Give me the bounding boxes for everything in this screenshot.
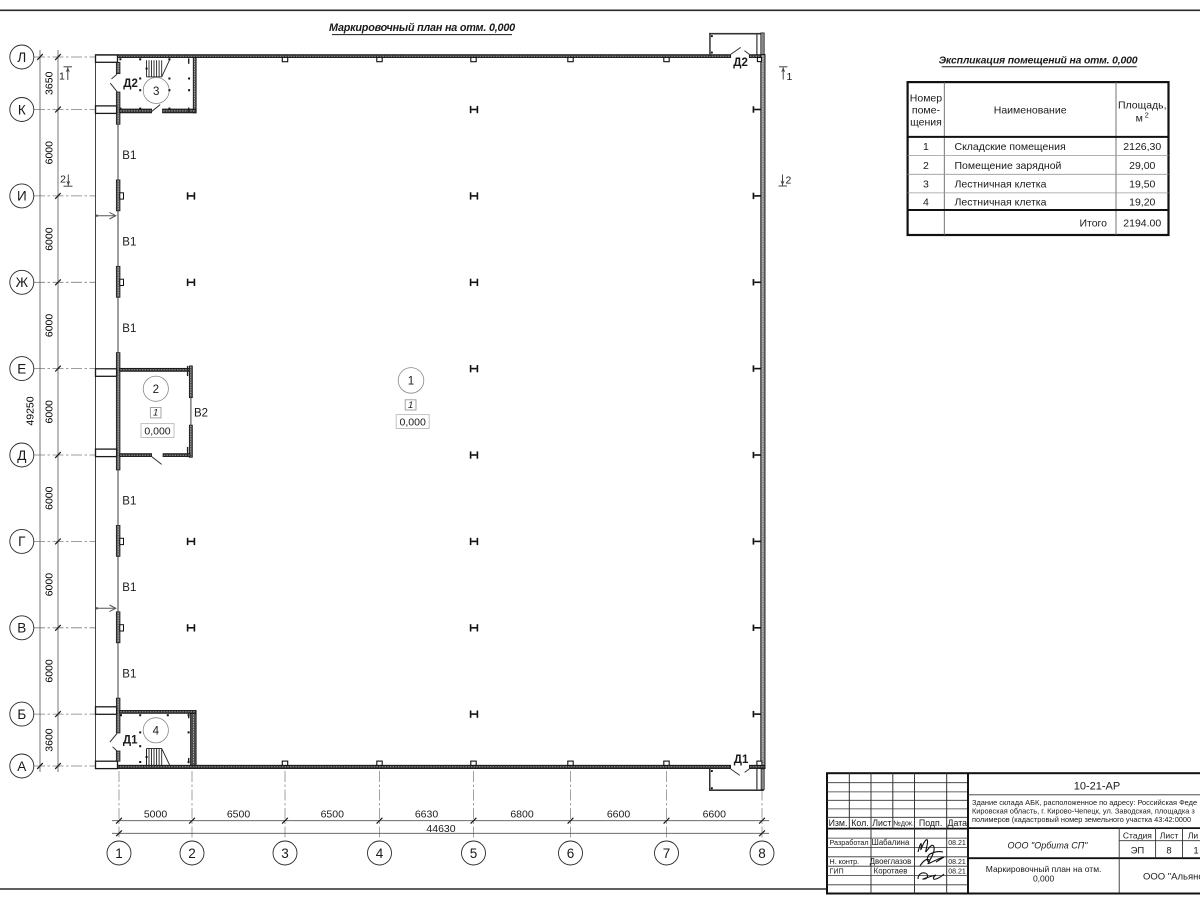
svg-text:Д: Д xyxy=(17,448,26,463)
svg-text:08.21: 08.21 xyxy=(948,859,966,866)
svg-text:6000: 6000 xyxy=(44,573,56,597)
svg-text:Коротаев: Коротаев xyxy=(874,867,908,876)
svg-text:№док.: №док. xyxy=(893,821,914,828)
svg-text:2194.00: 2194.00 xyxy=(1123,217,1161,229)
svg-text:1: 1 xyxy=(408,400,413,411)
svg-text:0,000: 0,000 xyxy=(144,425,170,437)
svg-text:Ли: Ли xyxy=(1188,830,1199,840)
svg-text:1: 1 xyxy=(787,71,793,83)
svg-text:2: 2 xyxy=(188,846,196,861)
svg-text:7: 7 xyxy=(663,846,671,861)
svg-text:2126,30: 2126,30 xyxy=(1123,141,1161,153)
svg-text:ЭП: ЭП xyxy=(1131,846,1145,857)
svg-text:полимеров (кадастровый номер з: полимеров (кадастровый номер земельного … xyxy=(972,815,1191,824)
svg-text:0,000: 0,000 xyxy=(1033,874,1055,884)
svg-text:6500: 6500 xyxy=(227,809,251,821)
svg-text:1: 1 xyxy=(1193,846,1198,857)
svg-text:08.21: 08.21 xyxy=(948,869,966,876)
svg-text:В: В xyxy=(17,621,26,636)
svg-text:6000: 6000 xyxy=(44,400,56,424)
svg-text:6000: 6000 xyxy=(44,659,56,683)
svg-text:29,00: 29,00 xyxy=(1129,160,1155,172)
svg-text:Лист: Лист xyxy=(872,818,891,828)
svg-text:6500: 6500 xyxy=(321,809,345,821)
svg-text:В1: В1 xyxy=(122,582,136,594)
svg-text:3: 3 xyxy=(281,846,289,861)
svg-text:08.21: 08.21 xyxy=(948,840,966,847)
svg-text:м: м xyxy=(1136,113,1143,125)
svg-text:3: 3 xyxy=(153,86,159,98)
svg-text:И: И xyxy=(17,189,27,204)
svg-text:6630: 6630 xyxy=(415,809,439,821)
svg-text:6800: 6800 xyxy=(510,809,534,821)
svg-text:Номер: Номер xyxy=(910,93,942,105)
svg-text:ГИП: ГИП xyxy=(830,867,844,876)
svg-text:Итого: Итого xyxy=(1079,217,1107,229)
svg-text:44630: 44630 xyxy=(426,823,455,835)
svg-text:5000: 5000 xyxy=(144,809,168,821)
svg-text:поме-: поме- xyxy=(912,105,941,117)
svg-text:4: 4 xyxy=(923,197,929,209)
svg-text:19,20: 19,20 xyxy=(1129,197,1155,209)
svg-text:Маркировочный план на отм. 0,0: Маркировочный план на отм. 0,000 xyxy=(329,22,515,34)
svg-text:Н. контр.: Н. контр. xyxy=(830,857,860,866)
svg-text:Двоеглазов: Двоеглазов xyxy=(870,857,911,866)
svg-text:6600: 6600 xyxy=(607,809,631,821)
svg-text:3650: 3650 xyxy=(44,71,56,95)
svg-text:Дата: Дата xyxy=(948,818,968,828)
svg-text:2: 2 xyxy=(1145,111,1149,120)
svg-text:2: 2 xyxy=(923,160,929,172)
svg-text:2: 2 xyxy=(60,174,66,186)
svg-text:5: 5 xyxy=(470,846,478,861)
svg-text:Маркировочный план на отм.: Маркировочный план на отм. xyxy=(986,864,1102,874)
svg-text:6000: 6000 xyxy=(44,486,56,510)
svg-text:ООО "Альянс: ООО "Альянс xyxy=(1143,871,1200,882)
svg-text:В1: В1 xyxy=(122,150,136,162)
svg-text:2: 2 xyxy=(786,175,792,187)
svg-text:3600: 3600 xyxy=(44,728,56,752)
svg-text:К: К xyxy=(18,102,26,117)
svg-text:Ж: Ж xyxy=(16,275,29,290)
svg-text:Кол.: Кол. xyxy=(851,818,868,828)
svg-text:Д2: Д2 xyxy=(123,78,138,90)
svg-text:В1: В1 xyxy=(122,236,136,248)
svg-text:ООО "Орбита СП": ООО "Орбита СП" xyxy=(1008,841,1089,851)
svg-text:Складские помещения: Складские помещения xyxy=(955,141,1066,153)
svg-text:1: 1 xyxy=(115,846,123,861)
svg-text:В2: В2 xyxy=(194,407,208,419)
svg-text:6: 6 xyxy=(567,846,575,861)
svg-text:19,50: 19,50 xyxy=(1129,178,1155,190)
svg-text:6000: 6000 xyxy=(44,141,56,165)
svg-text:Стадия: Стадия xyxy=(1123,830,1152,840)
svg-text:Помещение зарядной: Помещение зарядной xyxy=(955,160,1062,172)
svg-text:Л: Л xyxy=(17,50,26,65)
svg-text:1: 1 xyxy=(153,408,158,419)
svg-text:Наименование: Наименование xyxy=(994,105,1067,117)
svg-text:0,000: 0,000 xyxy=(400,416,426,428)
svg-text:щения: щения xyxy=(910,117,942,129)
svg-text:10-21-АР: 10-21-АР xyxy=(1074,780,1120,792)
svg-text:1: 1 xyxy=(408,376,414,388)
svg-text:2: 2 xyxy=(153,384,159,396)
svg-text:4: 4 xyxy=(376,846,384,861)
svg-text:Разработал: Разработал xyxy=(830,838,869,847)
svg-text:В1: В1 xyxy=(122,668,136,680)
svg-text:Д2: Д2 xyxy=(733,57,748,69)
svg-text:Лестничная клетка: Лестничная клетка xyxy=(955,178,1047,190)
svg-text:Д1: Д1 xyxy=(734,754,749,766)
svg-text:Экспликация помещений на отм.: Экспликация помещений на отм. 0,000 xyxy=(939,56,1138,67)
svg-text:Подп.: Подп. xyxy=(919,818,942,828)
svg-text:Лист: Лист xyxy=(1160,830,1179,840)
svg-text:1: 1 xyxy=(59,71,65,83)
svg-text:В1: В1 xyxy=(122,496,136,508)
svg-text:6000: 6000 xyxy=(44,227,56,251)
svg-text:Г: Г xyxy=(18,534,26,549)
svg-text:Лестничная клетка: Лестничная клетка xyxy=(955,197,1047,209)
svg-text:Б: Б xyxy=(17,707,26,722)
svg-text:В1: В1 xyxy=(122,323,136,335)
svg-text:8: 8 xyxy=(1166,846,1171,857)
svg-text:Е: Е xyxy=(17,361,26,376)
svg-text:Д1: Д1 xyxy=(123,735,138,747)
svg-text:3: 3 xyxy=(923,178,929,190)
svg-text:6000: 6000 xyxy=(44,314,56,338)
svg-text:А: А xyxy=(17,759,26,774)
svg-text:1: 1 xyxy=(923,141,929,153)
svg-text:8: 8 xyxy=(758,846,766,861)
svg-text:Изм.: Изм. xyxy=(829,818,848,828)
svg-text:49250: 49250 xyxy=(25,396,37,425)
svg-text:6600: 6600 xyxy=(703,809,727,821)
svg-text:Шабалина: Шабалина xyxy=(872,838,910,847)
svg-text:4: 4 xyxy=(153,726,160,738)
svg-text:Площадь,: Площадь, xyxy=(1118,100,1167,112)
